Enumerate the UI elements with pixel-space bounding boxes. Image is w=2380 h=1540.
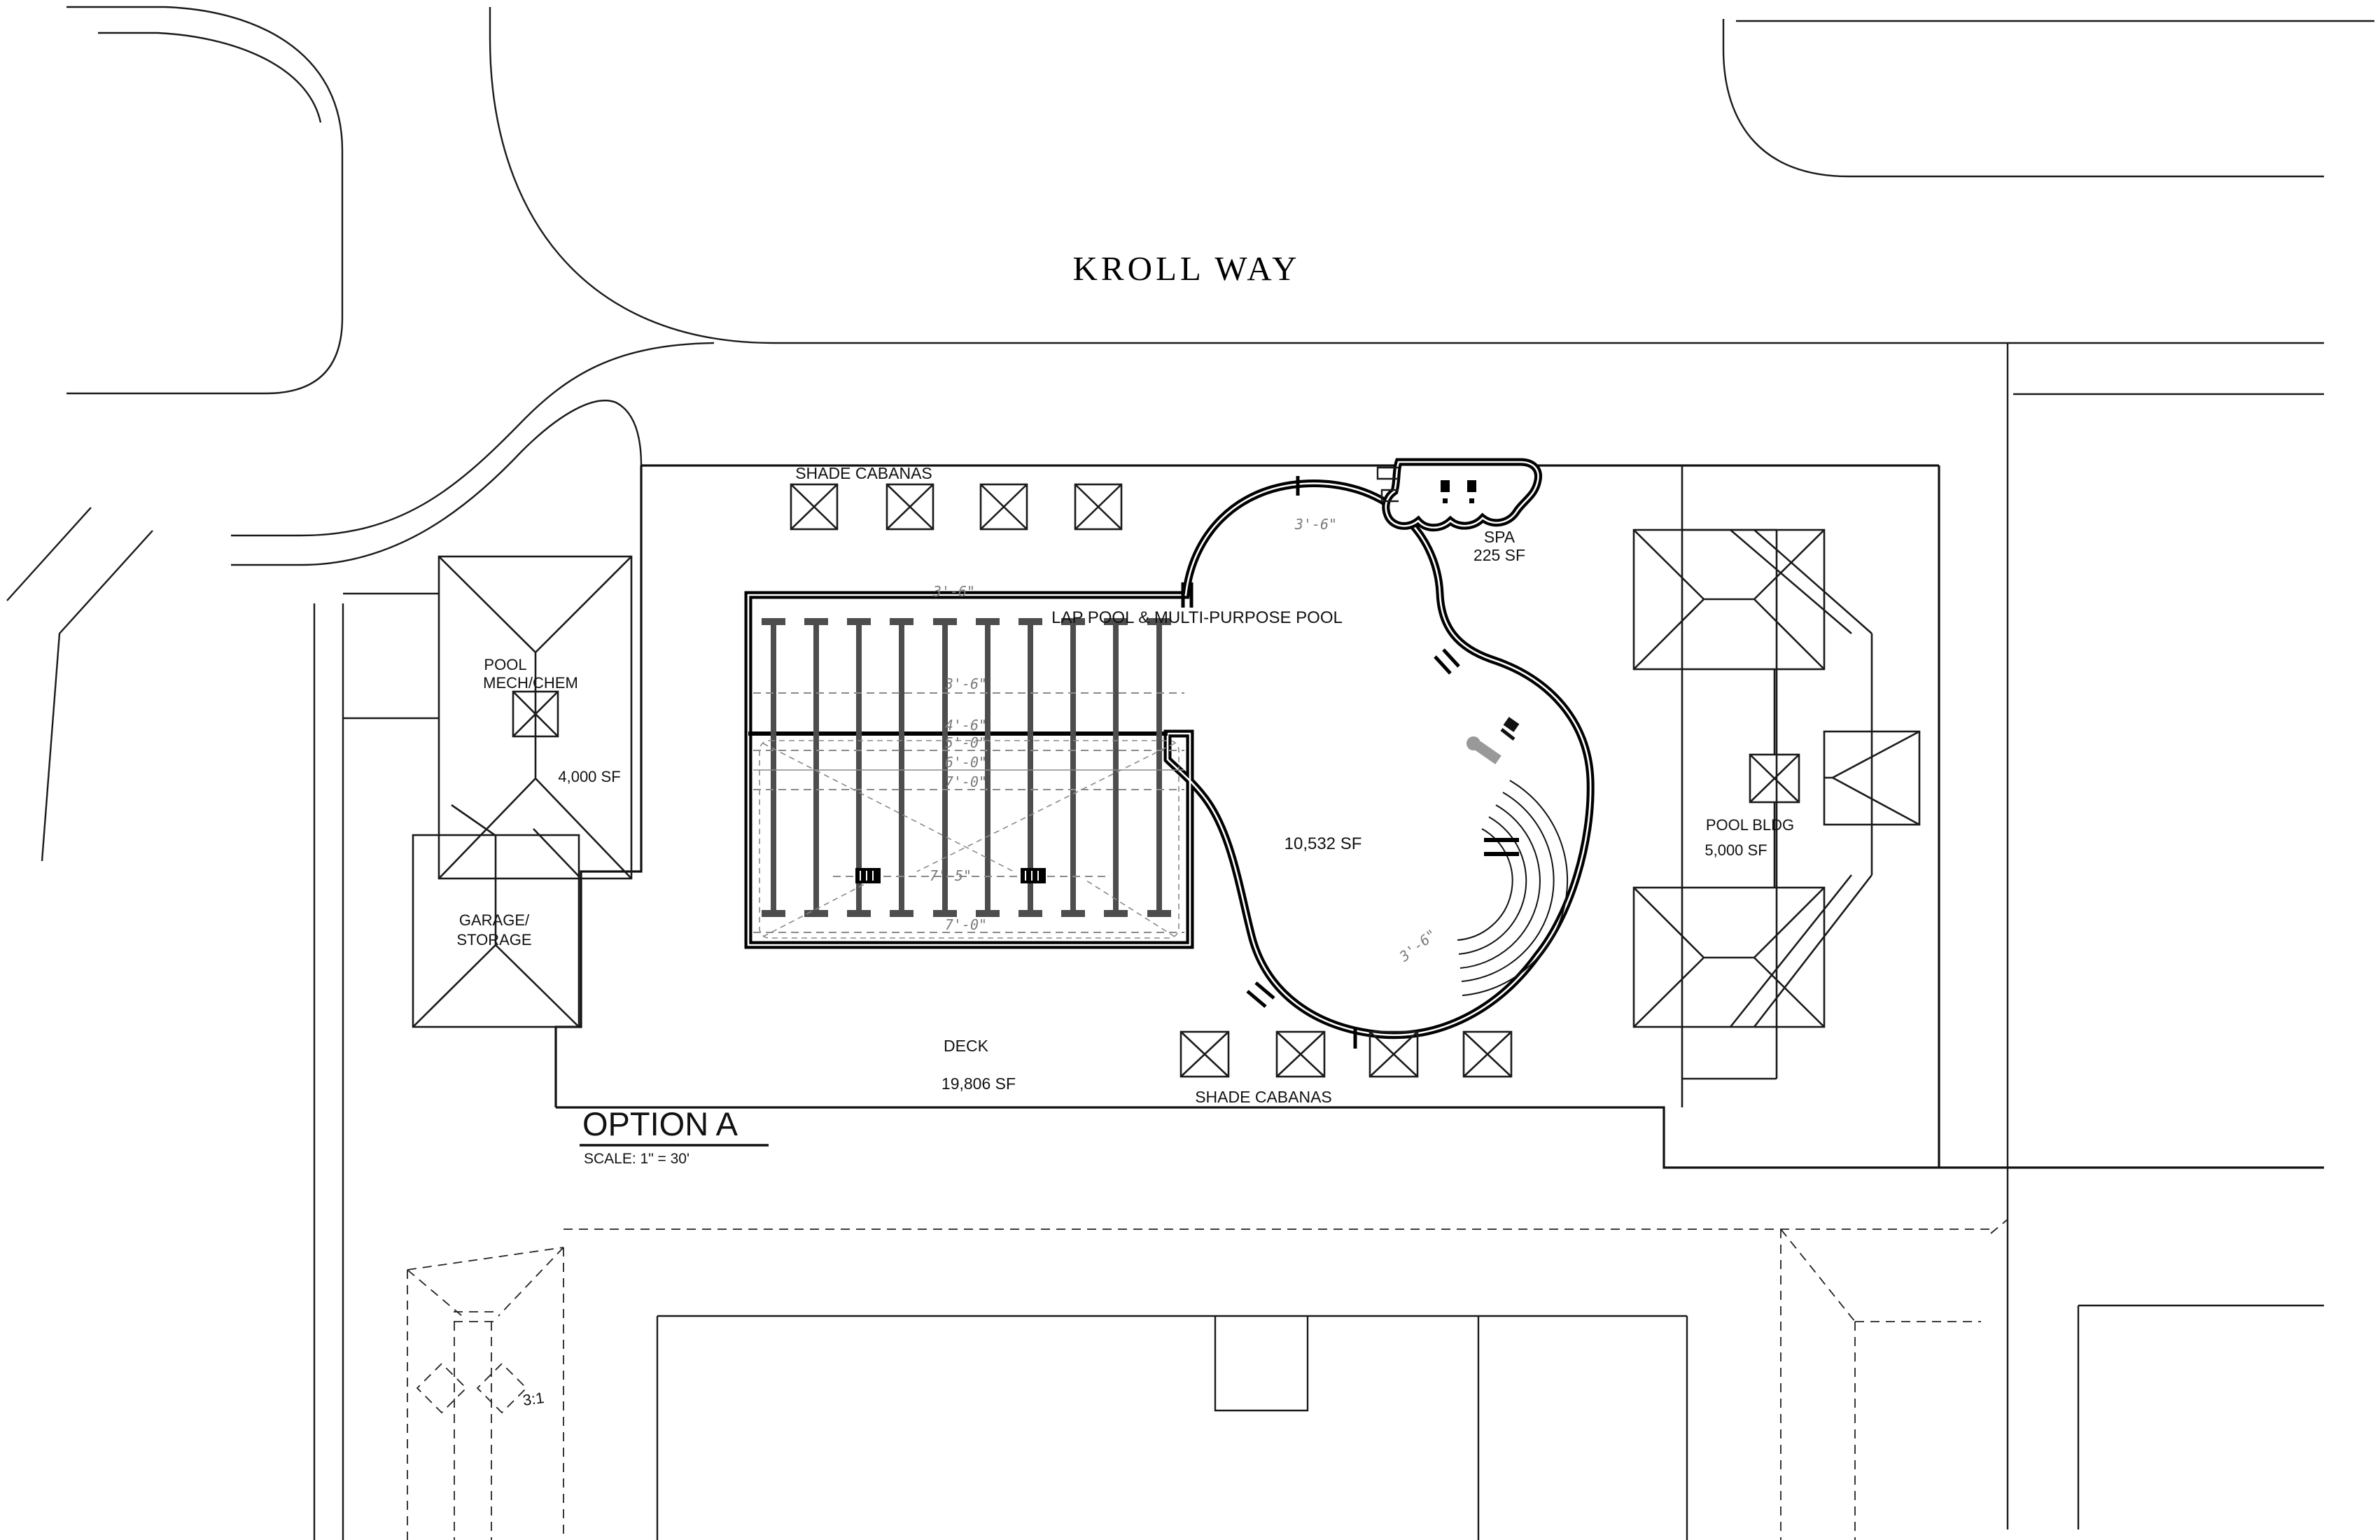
dim-5-0: 5'-0" [945,734,987,751]
deck-label: DECK 19,806 SF [941,1037,1016,1093]
dim-shallow: 3'-6" [944,675,987,692]
south-building-bay [1215,1316,1308,1410]
site-plan: 3:1 POOL MECH/CHEM 4,000 SF GARAGE/ STOR… [0,0,2380,1540]
dim-7-0: 7'-0" [945,773,987,790]
slope-ratio-label: 3:1 [521,1389,545,1409]
s-curve-curb-lower [231,400,641,565]
pool-bldg-east-roof [1730,530,1872,1027]
deck-west-edge [556,465,641,1107]
pool-bldg-label: POOL BLDG [1706,816,1794,834]
lap-pool-label: LAP POOL & MULTI-PURPOSE POOL [1051,608,1343,627]
dim-6-0: 6'-0" [945,754,987,771]
shade-cabanas-bottom: SHADE CABANAS [1181,1032,1511,1106]
option-title: OPTION A [582,1105,738,1142]
road-curb-topleft-inner [98,33,321,122]
mech-label-line2: MECH/CHEM [483,674,578,692]
dim-blob-edge: 3'-6" [1294,516,1337,533]
street-name-label: KROLL WAY [1073,249,1301,288]
far-left-diagonal-1 [7,507,91,601]
title-block: OPTION A SCALE: 1" = 30' [580,1105,769,1167]
deck-area-label: 19,806 SF [941,1074,1016,1093]
pool-area-label: 10,532 SF [1284,834,1362,853]
pool-bldg-spine [1682,465,1777,1107]
shade-cabanas-bottom-label: SHADE CABANAS [1195,1088,1332,1106]
spa-label: SPA [1484,528,1515,546]
mech-area-label: 4,000 SF [558,768,620,785]
dim-deep-end: 7'-0" [945,916,987,933]
garage-label-line1: GARAGE/ [459,911,530,929]
road-curb-topleft-outer [66,7,342,393]
dim-4-6: 4'-6" [945,717,987,734]
pool-outline [748,484,1590,1035]
garage-label-line2: STORAGE [456,931,531,948]
deck-name-label: DECK [944,1037,989,1055]
spa-outline [1386,462,1539,528]
southeast-building-corner [2078,1305,2324,1529]
property-notch-dashed [1781,1229,1981,1540]
property-line-dashed [563,1219,2008,1233]
mech-label-line1: POOL [484,656,526,673]
pool-complex: LAP POOL & MULTI-PURPOSE POOL 10,532 SF … [748,476,1590,1049]
pool-building: POOL BLDG 5,000 SF [1634,465,1919,1107]
deck-south-edge [556,1107,2324,1168]
spa-area-label: 225 SF [1473,546,1525,564]
pool-bldg-area-label: 5,000 SF [1704,841,1767,859]
south-building-outline [657,1316,1687,1540]
far-left-diagonal-2 [42,531,153,861]
road-curb-topright-curve [1723,19,2324,176]
dim-deep-mid: 7'-5" [930,867,972,884]
shade-cabanas-top: SHADE CABANAS [791,464,1121,529]
kroll-way-south-curb [490,7,2324,343]
garage-storage-building: GARAGE/ STORAGE [413,805,579,1027]
dim-lap-edge: 3'-6" [932,583,975,600]
scale-note: SCALE: 1" = 30' [584,1151,689,1167]
shade-cabanas-top-label: SHADE CABANAS [795,464,932,482]
page: { "drawing": { "street": { "name": "KROL… [0,0,2380,1540]
south-parcels: 3:1 [407,1219,2324,1540]
